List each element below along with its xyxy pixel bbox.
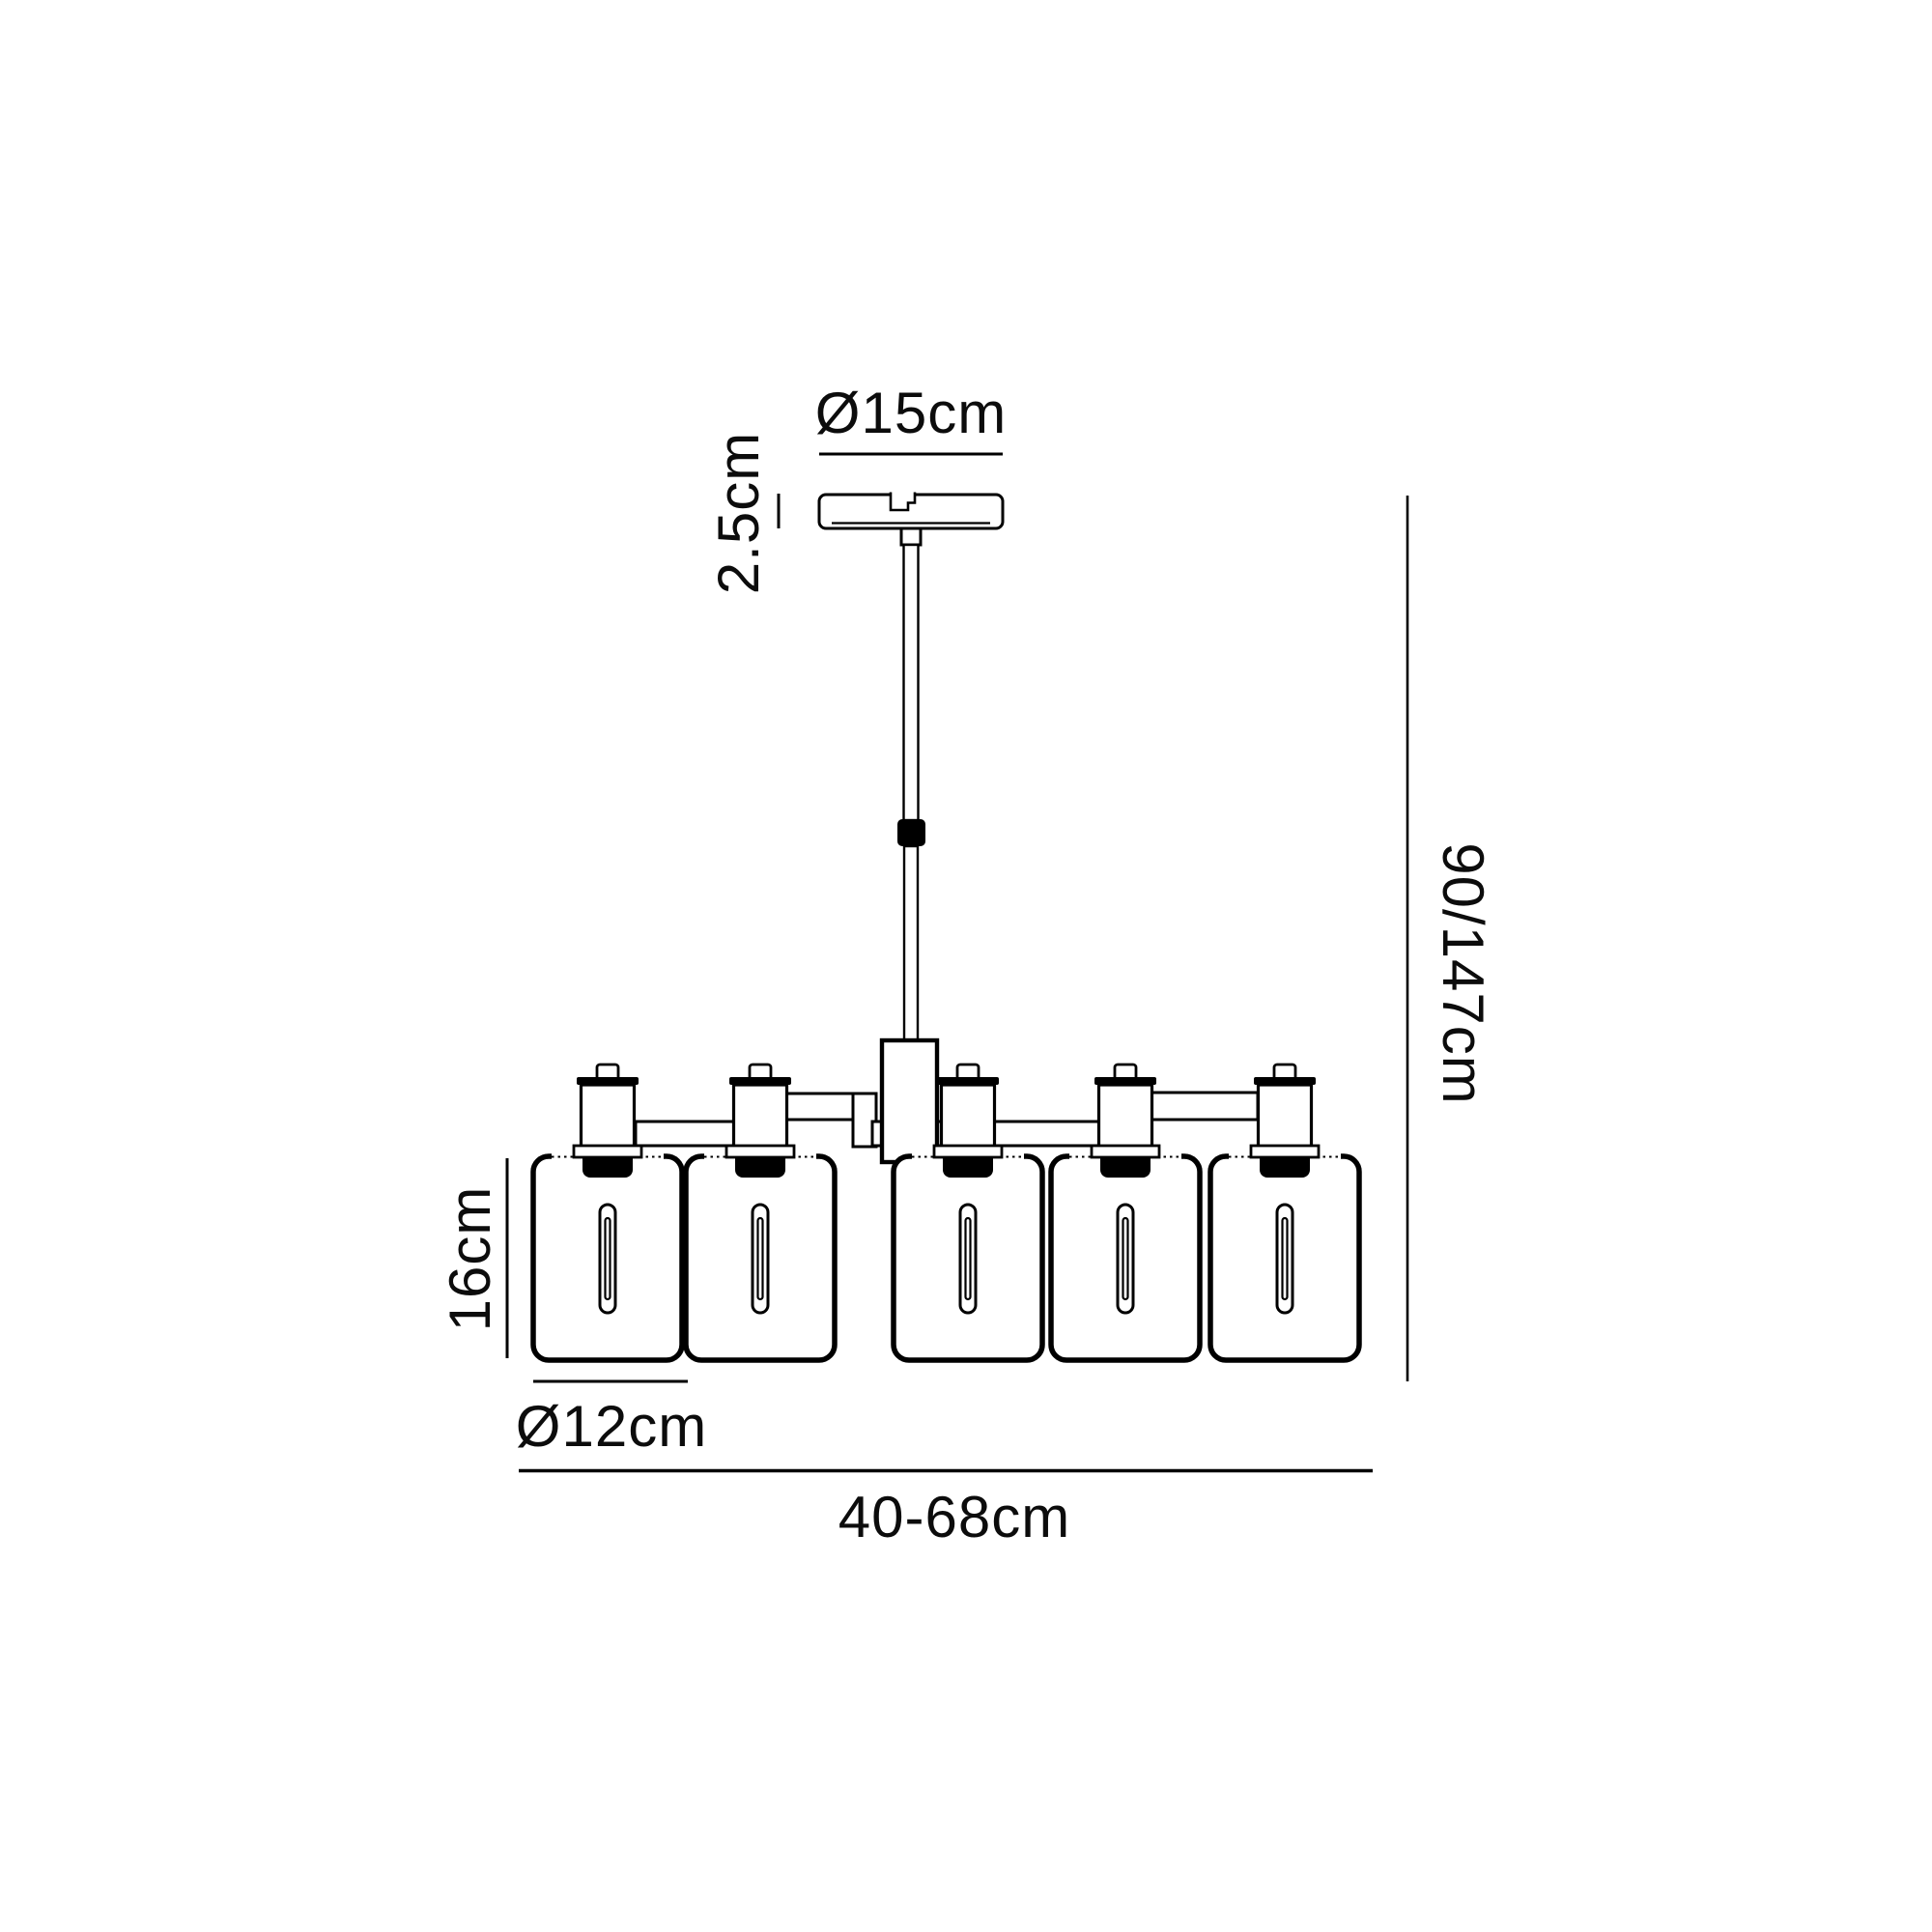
dimension-diagram: Ø15cm 2.5cm 90/147cm 16cm Ø12cm 40-68cm [0, 0, 1932, 1932]
fixture-width-label: 40-68cm [838, 1489, 1070, 1547]
lamp-holder [726, 1065, 794, 1157]
shade-seam-inner [758, 1218, 763, 1299]
lamp-socket [943, 1157, 993, 1178]
shade [686, 1151, 835, 1360]
shade [533, 1151, 682, 1360]
lamp-holder [1092, 1065, 1159, 1157]
shade-height-label: 16cm [441, 1186, 499, 1332]
holder-body [1259, 1085, 1312, 1147]
canopy-and-stem [819, 493, 1003, 1042]
shade [894, 1151, 1042, 1360]
shade-seam-inner [1283, 1218, 1288, 1299]
drop-height-label: 90/147cm [1434, 842, 1492, 1105]
canopy-diameter-label: Ø15cm [815, 384, 1007, 442]
holder-body [582, 1085, 635, 1147]
central-hub [882, 1040, 937, 1162]
holder-body [942, 1085, 995, 1147]
lamp-holder [934, 1065, 1002, 1157]
arm-upper-left [784, 1094, 860, 1120]
lamp-socket [1100, 1157, 1151, 1178]
shade-seam-inner [966, 1218, 971, 1299]
lamp-holder [574, 1065, 641, 1157]
lamp-socket [582, 1157, 633, 1178]
shade [1210, 1151, 1359, 1360]
chandelier-line-drawing [0, 0, 1932, 1932]
holder-body [1099, 1085, 1152, 1147]
shades [533, 1151, 1359, 1360]
holder-body [734, 1085, 787, 1147]
holder-flange [1251, 1146, 1319, 1157]
lamp-socket [1260, 1157, 1310, 1178]
shade-seam-inner [606, 1218, 611, 1299]
holder-flange [726, 1146, 794, 1157]
shade [1051, 1151, 1200, 1360]
stem-lower-rod [904, 846, 918, 1041]
shade-seam-inner [1123, 1218, 1128, 1299]
holder-flange [1092, 1146, 1159, 1157]
stem-collar [901, 528, 921, 545]
canopy-height-label: 2.5cm [710, 432, 768, 594]
lamp-socket [735, 1157, 785, 1178]
stem-upper-rod [904, 545, 919, 820]
holder-flange [574, 1146, 641, 1157]
stem-adjuster-block [897, 819, 925, 846]
shade-diameter-label: Ø12cm [516, 1398, 707, 1456]
holder-flange [934, 1146, 1002, 1157]
lamp-holder [1251, 1065, 1319, 1157]
